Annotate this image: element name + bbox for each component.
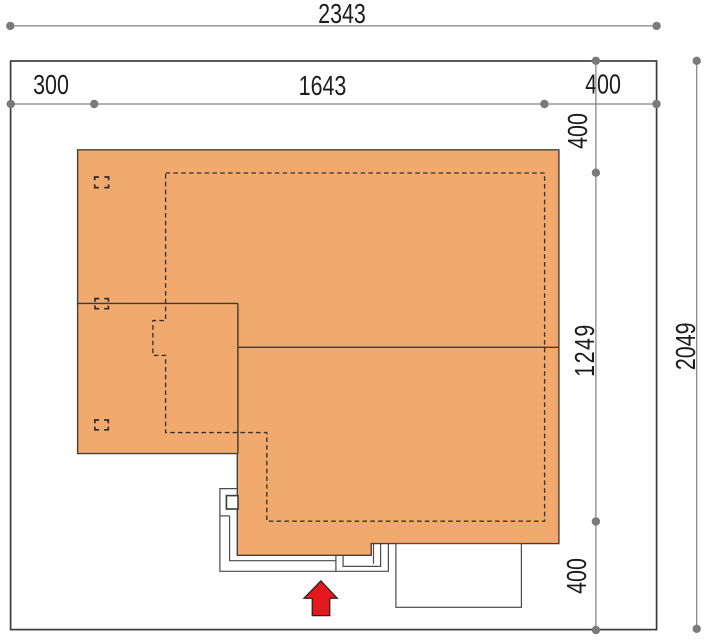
svg-text:300: 300	[33, 71, 69, 101]
svg-text:1643: 1643	[299, 72, 347, 102]
svg-text:2343: 2343	[318, 0, 366, 30]
svg-text:2049: 2049	[672, 322, 702, 370]
svg-text:400: 400	[563, 558, 593, 594]
svg-text:400: 400	[585, 70, 621, 100]
svg-text:1249: 1249	[571, 323, 601, 377]
svg-text:400: 400	[564, 113, 594, 149]
